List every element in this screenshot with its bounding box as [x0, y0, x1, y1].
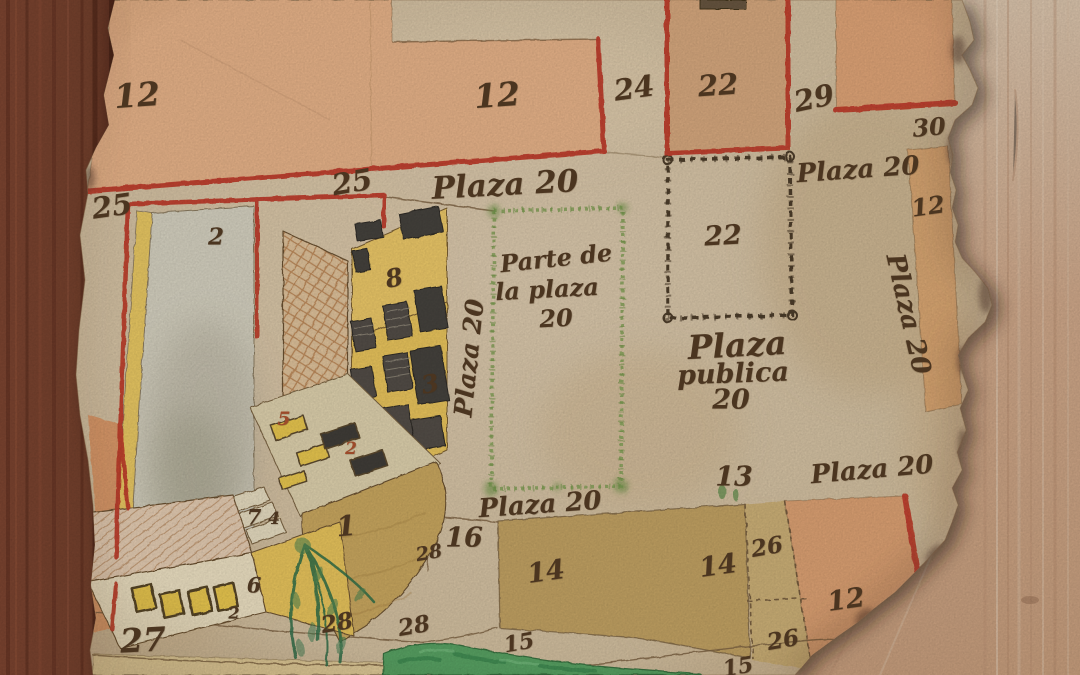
grain-overlay: [0, 0, 1080, 675]
historical-map: Plaza 20Plaza 20Plaza 20Plaza 20Plaza 20…: [0, 0, 1080, 675]
map-artwork: [0, 0, 1080, 675]
